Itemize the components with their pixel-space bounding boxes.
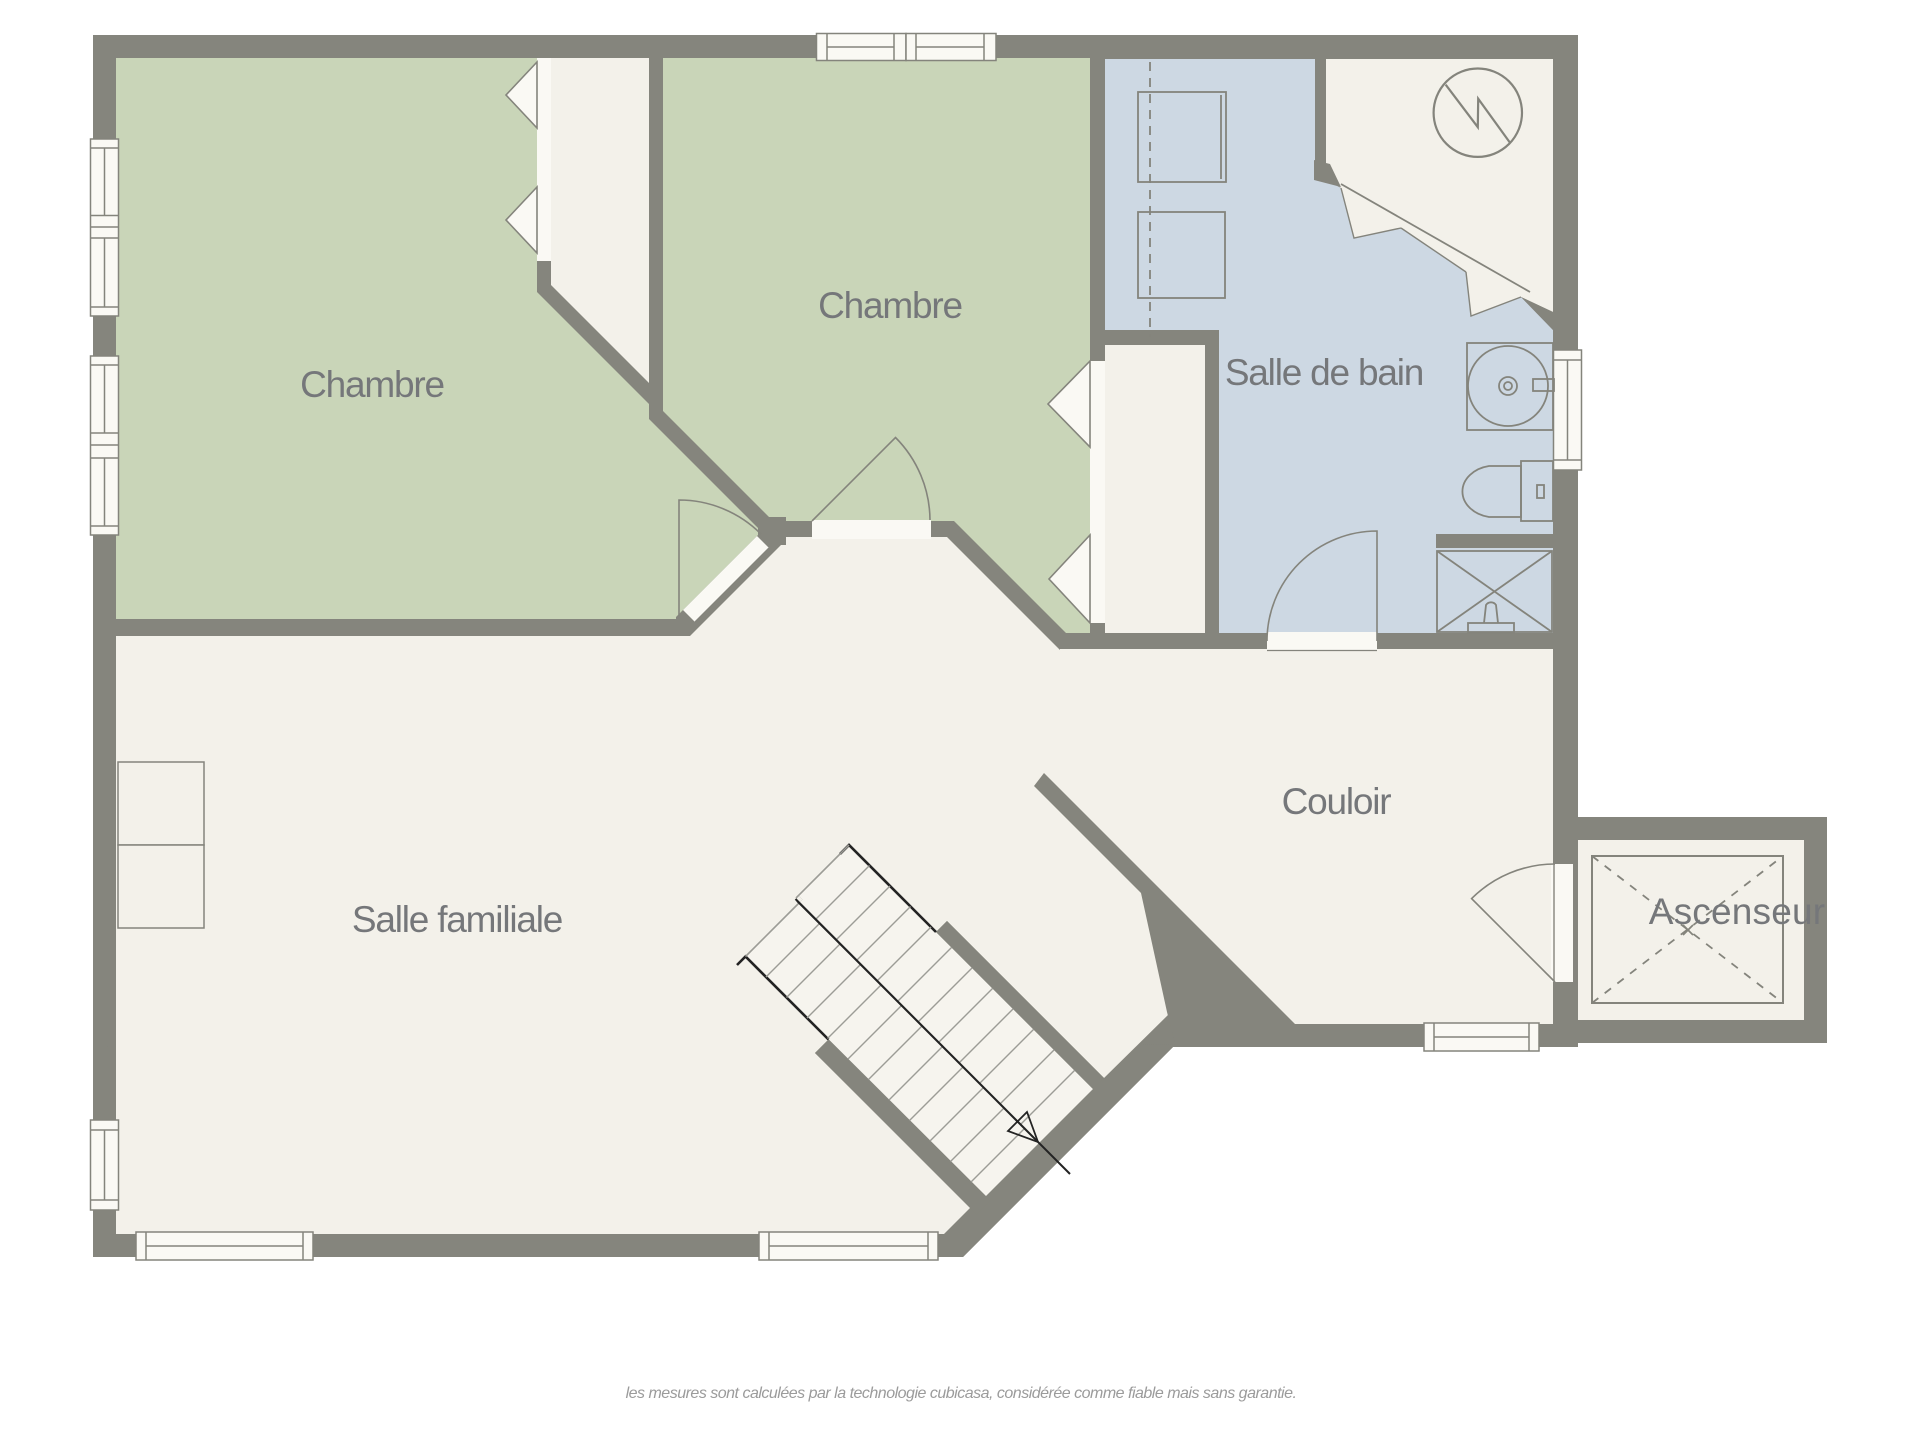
svg-text:Salle familiale: Salle familiale [352,899,562,940]
svg-text:Chambre: Chambre [818,285,962,326]
svg-text:Couloir: Couloir [1282,781,1392,822]
svg-text:Chambre: Chambre [300,364,444,405]
svg-text:Ascenseur: Ascenseur [1649,891,1826,932]
svg-text:les mesures sont calculées par: les mesures sont calculées par la techno… [626,1385,1297,1402]
svg-text:Salle de bain: Salle de bain [1225,352,1423,393]
